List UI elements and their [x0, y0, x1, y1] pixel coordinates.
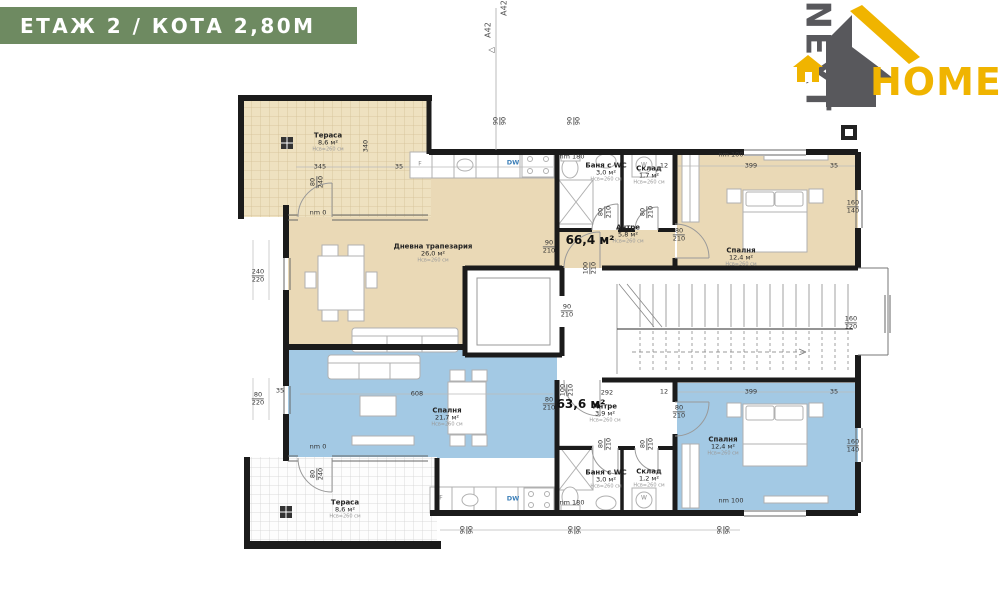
elevator-shaft-floor — [465, 266, 562, 357]
kitchen-sink-2 — [462, 494, 478, 506]
door-bath-2 — [592, 448, 618, 474]
shelf-2 — [764, 496, 828, 503]
door-entry-2 — [564, 380, 600, 416]
terrace-2-tiles — [249, 457, 437, 545]
dining-table-2 — [448, 382, 486, 434]
sink-2 — [596, 496, 616, 510]
door-storage-1 — [635, 207, 658, 230]
stove-1 — [522, 153, 554, 177]
terrace-1-tiles — [243, 97, 431, 217]
floorplan-page: ЕТАЖ 2 / КОТА 2,80М NEXT HOME — [0, 0, 1000, 596]
coffee-table-2 — [360, 396, 396, 416]
sink-1 — [596, 154, 616, 168]
sofa-2 — [328, 355, 420, 379]
tv-unit-2 — [352, 436, 414, 445]
staircase — [617, 284, 853, 374]
stair-balcony — [858, 268, 888, 355]
stove-2 — [524, 488, 554, 511]
door-storage-2 — [635, 448, 658, 471]
toilet-2 — [562, 487, 578, 507]
floorplan-drawing — [0, 0, 1000, 596]
kitchen-sink-1 — [457, 159, 473, 171]
door-bath-1 — [592, 204, 618, 230]
dining-table-1 — [318, 256, 364, 310]
